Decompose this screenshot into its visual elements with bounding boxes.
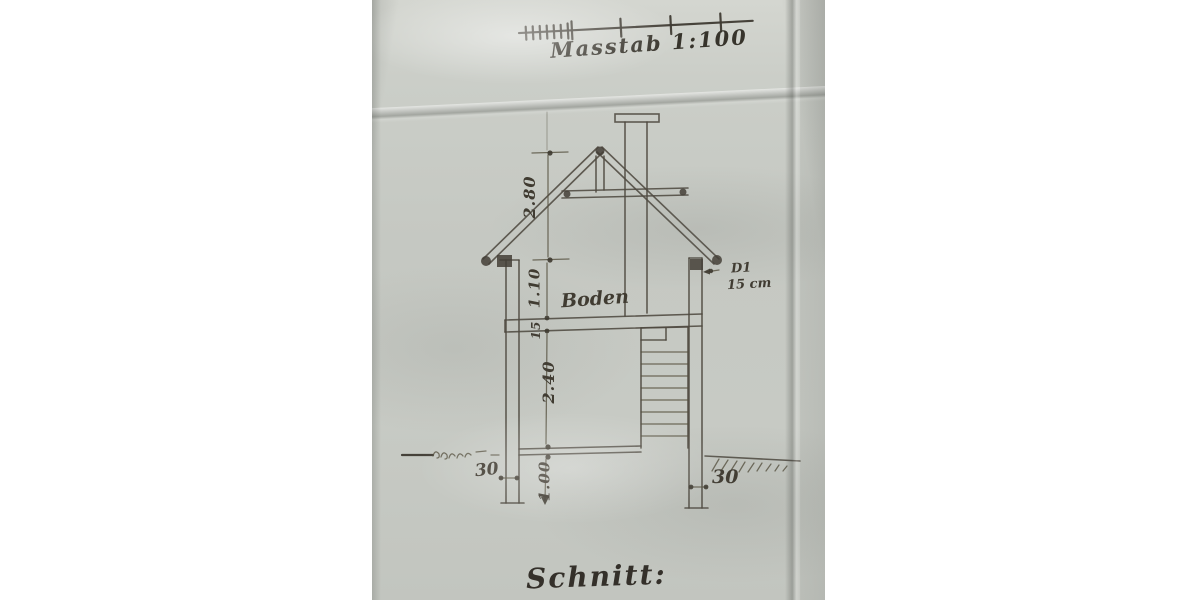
dim-room-height: 2.40 [541,361,557,404]
paper-left-edge-shadow [372,0,381,600]
eave-note-arrow [703,269,719,275]
paper-right-edge-shadow [800,0,825,600]
dim-roof-height: 2.80 [522,176,538,219]
drawing-title: Schnitt: [526,561,668,594]
vertical-crease [785,0,801,600]
ground-lines [402,446,800,472]
dim-floor-thickness: 15 [530,321,542,340]
dim-upper-wall: 1.10 [528,268,543,309]
dim-foundation-depth: 1.00 [538,461,553,502]
dim-foundation-width-right: 30 [712,468,738,487]
paper-photo: Masstab 1:100 2.80 1.10 Boden 15 2.40 D1… [372,0,825,600]
brick-column [641,327,688,448]
eave-note-line2: 15 cm [727,277,772,292]
dim-foundation-width-left: 30 [474,461,499,480]
grass-hatch-left [433,452,471,459]
screenshot: Masstab 1:100 2.80 1.10 Boden 15 2.40 D1… [0,0,1200,600]
roof-truss [481,147,722,267]
floor-label: Boden [560,288,629,312]
eave-note-line1: D1 [731,261,752,275]
